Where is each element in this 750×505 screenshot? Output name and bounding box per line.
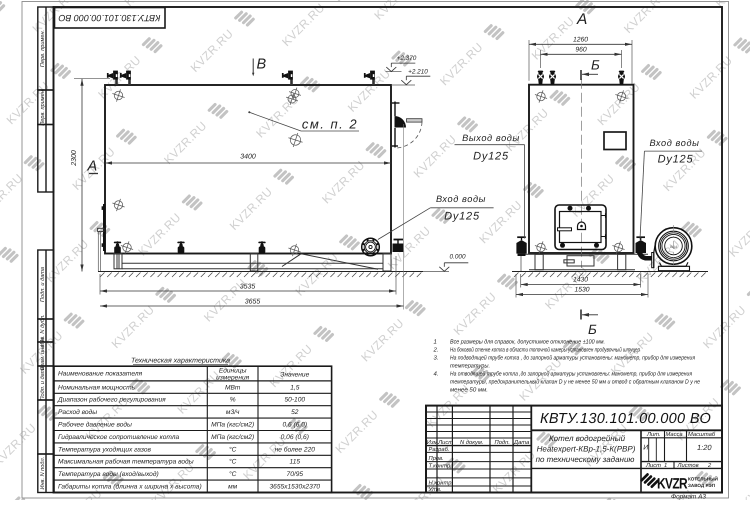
svg-text:МПа (кгс/см2): МПа (кгс/см2) [211, 422, 254, 429]
svg-text:Лист: Лист [645, 463, 661, 469]
svg-text:0,6 (6,0): 0,6 (6,0) [283, 422, 308, 429]
svg-text:Номинальная мощность: Номинальная мощность [58, 384, 136, 391]
svg-text:Б: Б [588, 322, 597, 337]
svg-text:°С: °С [229, 446, 237, 453]
svg-text:Дата: Дата [513, 440, 530, 446]
svg-text:А: А [87, 159, 98, 175]
svg-text:50-100: 50-100 [285, 397, 306, 404]
svg-text:Формат А3: Формат А3 [671, 494, 706, 501]
svg-text:Температура уходящих газов: Температура уходящих газов [58, 446, 151, 453]
svg-text:Вход воды: Вход воды [436, 194, 486, 204]
svg-text:°С: °С [229, 459, 237, 466]
svg-text:1430: 1430 [573, 277, 588, 284]
svg-text:В: В [257, 57, 267, 73]
svg-text:1,5: 1,5 [290, 384, 299, 391]
svg-text:3400: 3400 [240, 154, 256, 161]
svg-text:менее 50 мм.: менее 50 мм. [450, 387, 488, 394]
svg-text:Рабочее давление воды: Рабочее давление воды [58, 422, 132, 429]
svg-text:2300: 2300 [71, 150, 78, 167]
svg-text:не более 220: не более 220 [275, 446, 316, 453]
svg-text:Вход воды: Вход воды [650, 138, 700, 148]
svg-text:Подп.: Подп. [495, 439, 510, 446]
svg-text:Утв.: Утв. [428, 487, 442, 493]
svg-text:0,06 (0,6): 0,06 (0,6) [281, 434, 309, 441]
svg-text:Взам. инв. N: Взам. инв. N [40, 337, 46, 371]
svg-text:Т.контр.: Т.контр. [429, 463, 452, 469]
svg-text:измерения: измерения [216, 374, 249, 381]
svg-text:температуры.: температуры. [450, 364, 490, 370]
svg-text:Dy125: Dy125 [444, 211, 480, 223]
svg-text:Диапазон рабочего регулировани: Диапазон рабочего регулирования [57, 397, 166, 404]
svg-text:На отводящей трубе котла ,до з: На отводящей трубе котла ,до запорной ар… [450, 371, 693, 378]
svg-text:Температура воды (вход/выход): Температура воды (вход/выход) [58, 471, 159, 478]
svg-text:Разраб.: Разраб. [429, 446, 450, 453]
svg-text:Расход воды: Расход воды [58, 409, 97, 416]
svg-text:Техническая характеристика: Техническая характеристика [131, 358, 230, 365]
svg-text:70/95: 70/95 [287, 471, 304, 478]
svg-text:1: 1 [664, 463, 667, 469]
svg-text:Б: Б [591, 58, 600, 73]
svg-text:Единицы: Единицы [219, 367, 247, 374]
svg-text:+2.370: +2.370 [397, 55, 417, 62]
svg-text:Выход воды: Выход воды [462, 133, 520, 143]
svg-text:мм: мм [228, 484, 238, 491]
svg-text:1: 1 [434, 339, 437, 346]
svg-text:4.: 4. [434, 371, 439, 378]
svg-text:3.: 3. [434, 355, 439, 362]
svg-text:А: А [576, 11, 587, 28]
svg-text:Лист: Лист [437, 440, 453, 446]
svg-text:+2.210: +2.210 [408, 69, 428, 76]
svg-text:KVZR: KVZR [657, 476, 688, 493]
svg-text:Масштаб: Масштаб [688, 431, 716, 438]
svg-text:температуры, предохранительный: температуры, предохранительный клапан D … [450, 379, 701, 386]
svg-text:52: 52 [291, 409, 299, 416]
svg-text:Габариты котла (длинна х ширин: Габариты котла (длинна х ширина х высота… [58, 484, 202, 491]
svg-text:Перв. примен.: Перв. примен. [40, 89, 46, 126]
svg-text:Лит.: Лит. [646, 432, 661, 438]
svg-text:Наименование показателя: Наименование показателя [58, 371, 143, 378]
svg-text:Листов: Листов [677, 463, 699, 469]
svg-text:м3/ч: м3/ч [226, 409, 240, 416]
svg-text:960: 960 [575, 47, 587, 54]
svg-text:°С: °С [229, 471, 237, 478]
svg-text:Максимальная рабочая температу: Максимальная рабочая температура воды [58, 459, 194, 466]
svg-text:КВТУ.130.101.00.000 ВО: КВТУ.130.101.00.000 ВО [540, 411, 711, 427]
svg-text:1530: 1530 [574, 287, 589, 294]
svg-text:Котел водогрейный: Котел водогрейный [549, 434, 626, 443]
svg-text:ВЦ4: ВЦ4 [670, 245, 677, 249]
svg-text:МВт: МВт [225, 384, 241, 391]
svg-text:1:20: 1:20 [697, 443, 712, 452]
svg-text:3655х1530х2370: 3655х1530х2370 [269, 484, 320, 491]
svg-text:Heatexpert-КВр-1,5-К(РВР): Heatexpert-КВр-1,5-К(РВР) [537, 445, 636, 454]
svg-text:КОТЕЛЬНЫЙ: КОТЕЛЬНЫЙ [688, 476, 718, 482]
svg-text:3655: 3655 [245, 298, 261, 305]
svg-text:115: 115 [290, 459, 301, 466]
svg-text:ЗАВОД РЭП: ЗАВОД РЭП [688, 483, 715, 488]
svg-text:Подп. и дата: Подп. и дата [39, 365, 46, 400]
svg-text:N докум.: N докум. [460, 439, 483, 446]
svg-text:На подводящей трубе котла ,: На подводящей трубе котла , до запорной … [450, 355, 696, 362]
svg-text:КВТУ.130.101.00.000 ВО: КВТУ.130.101.00.000 ВО [59, 13, 161, 23]
svg-text:2.: 2. [433, 347, 439, 354]
svg-text:Гидравлическое сопротивление к: Гидравлическое сопротивление котла [58, 434, 179, 441]
svg-text:%: % [230, 397, 236, 404]
svg-text:Инв. N подл.: Инв. N подл. [39, 457, 46, 490]
svg-text:по техническому заданию: по техническому заданию [536, 455, 635, 464]
svg-text:1260: 1260 [573, 36, 588, 43]
svg-text:МПа (кгс/см2): МПа (кгс/см2) [211, 434, 254, 441]
svg-text:Н.контр.: Н.контр. [429, 480, 454, 486]
svg-text:Все размеры для справок, допус: Все размеры для справок, допустимое откл… [450, 339, 605, 346]
svg-text:3535: 3535 [240, 283, 256, 290]
svg-text:Пров.: Пров. [429, 456, 444, 462]
svg-text:Dy125: Dy125 [658, 154, 694, 166]
svg-text:На боковой стенке котла в обла: На боковой стенке котла в области топочн… [450, 347, 640, 354]
svg-text:0.000: 0.000 [450, 254, 466, 261]
svg-text:Масса: Масса [666, 432, 684, 438]
svg-text:Значение: Значение [280, 372, 309, 379]
svg-text:Dy125: Dy125 [473, 151, 509, 163]
svg-text:Подп. и дата: Подп. и дата [39, 267, 46, 302]
svg-text:Перв. примен.: Перв. примен. [40, 30, 46, 67]
svg-text:см. п. 2: см. п. 2 [302, 117, 358, 132]
